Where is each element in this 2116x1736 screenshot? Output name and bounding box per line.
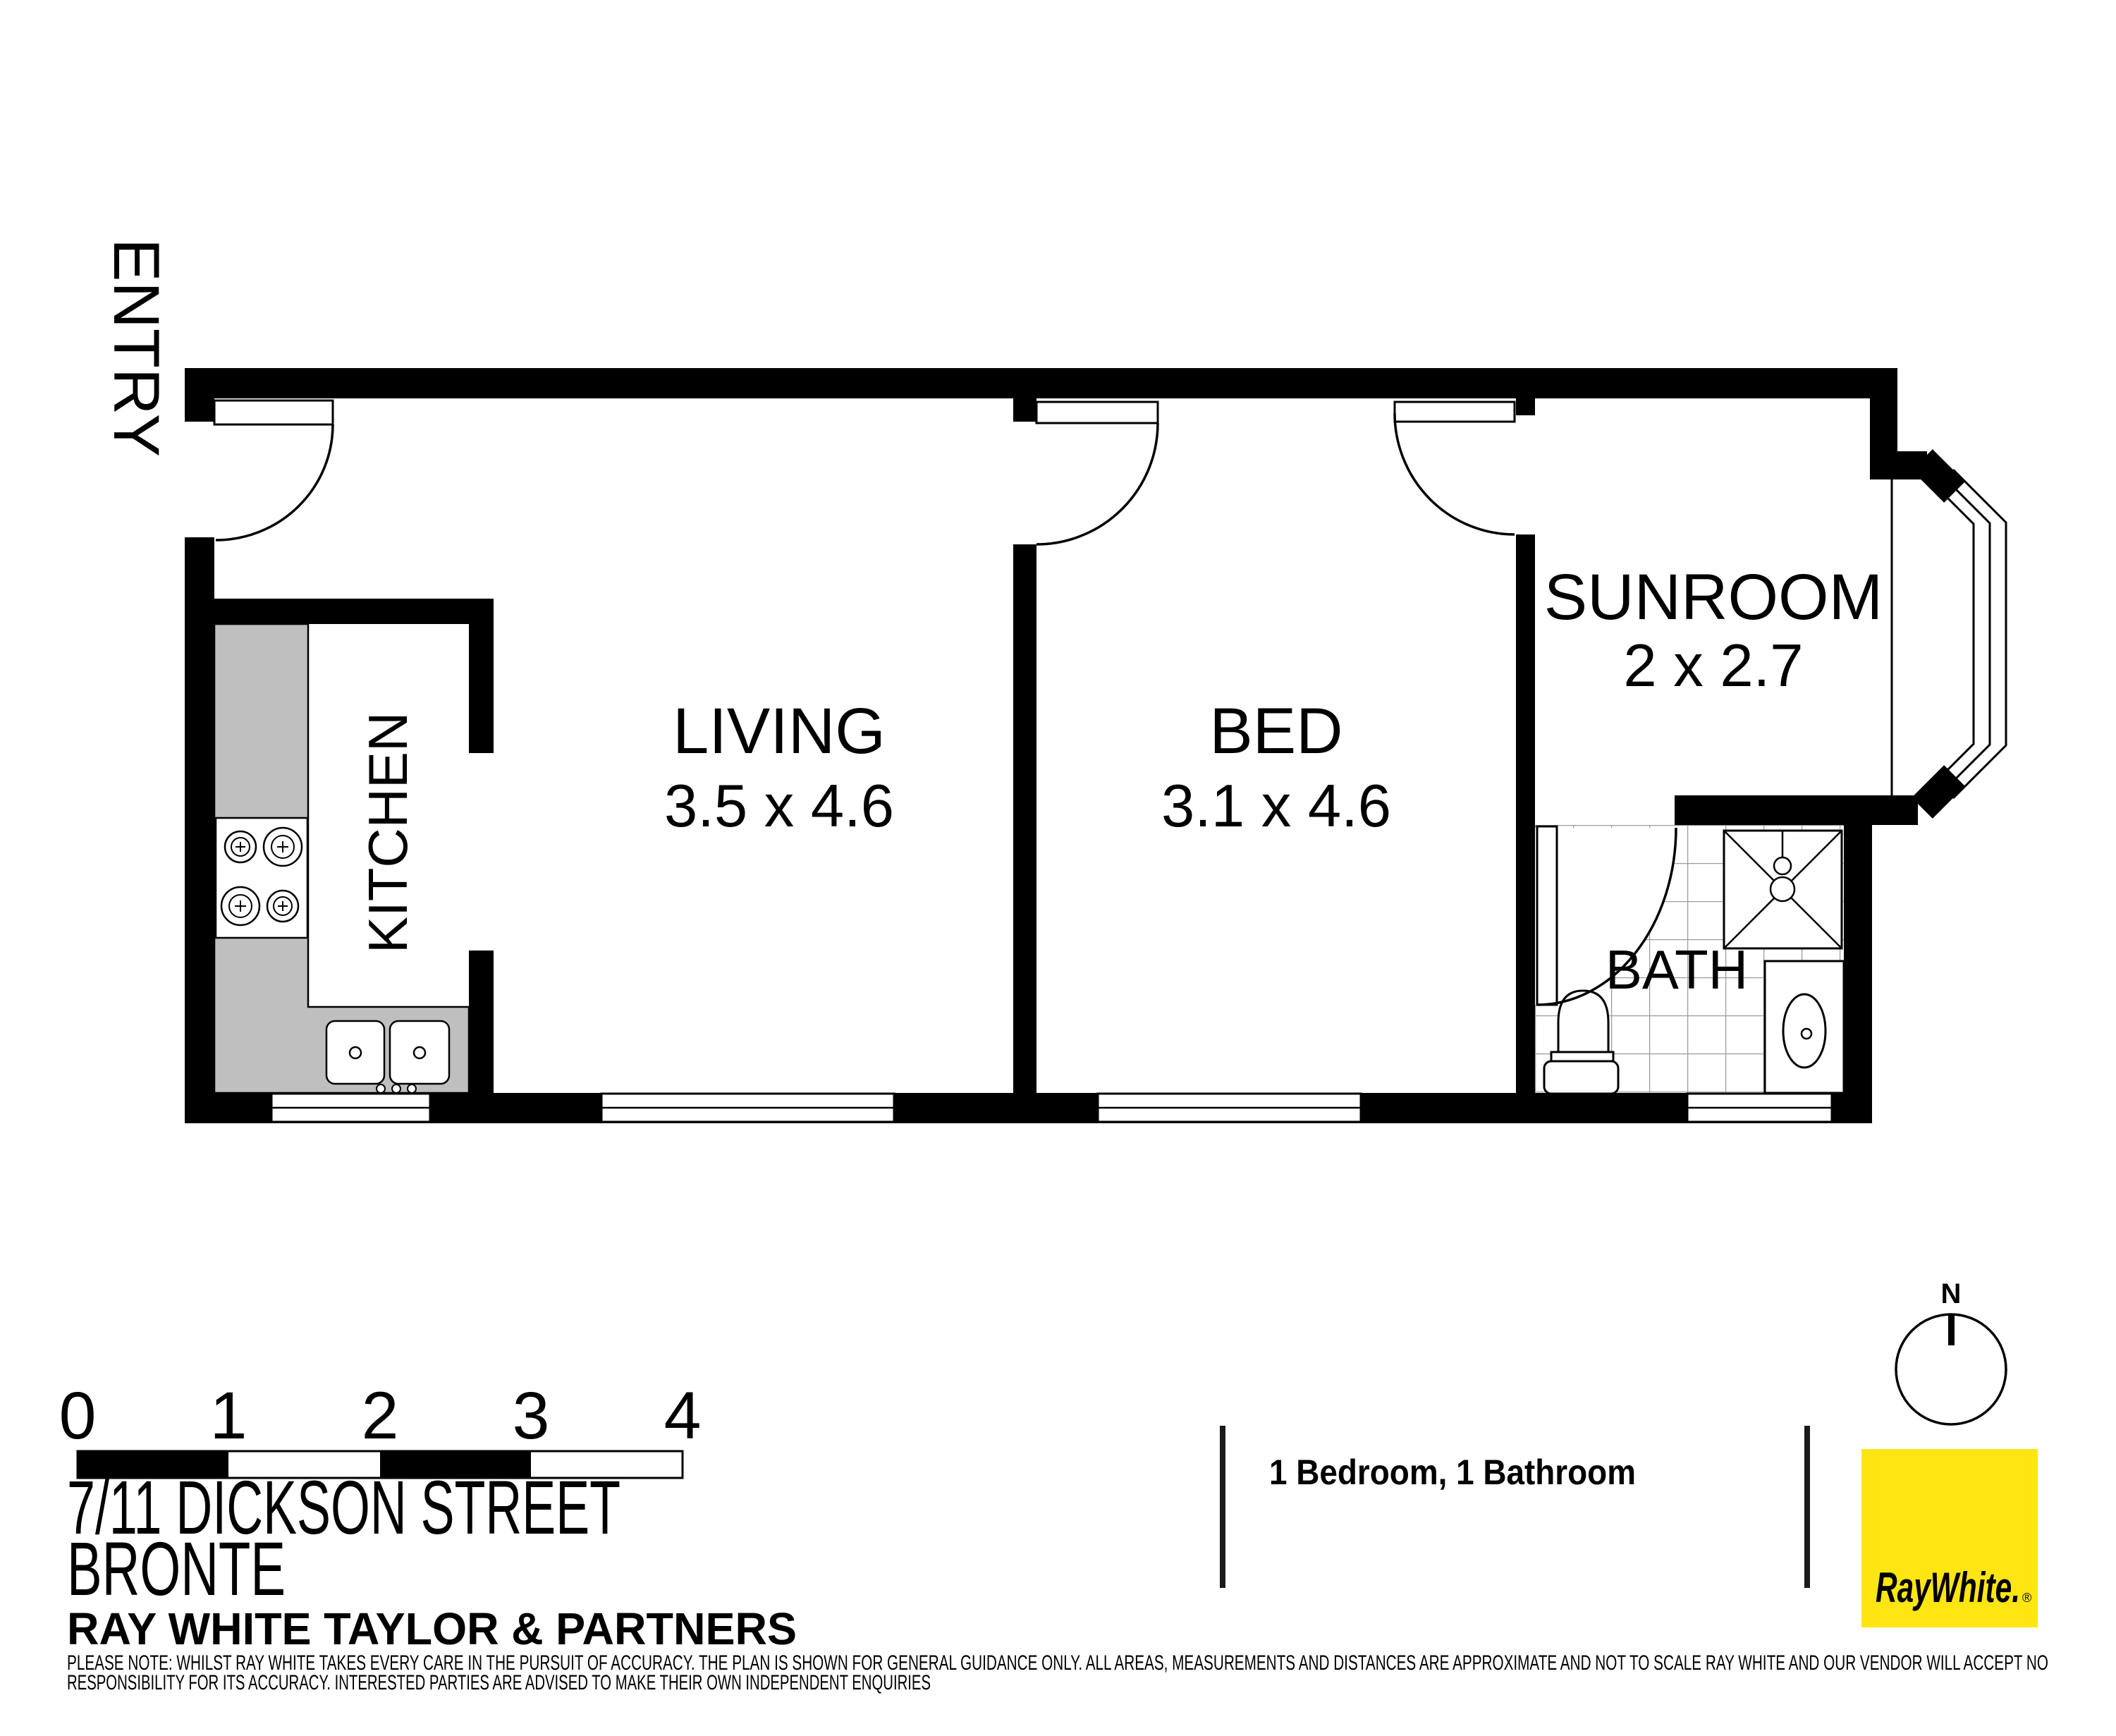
wall-bath-right — [1844, 811, 1872, 1123]
room-label-bath: BATH — [1606, 939, 1748, 1001]
window-kitchen — [271, 1094, 430, 1122]
room-dims-bed: 3.1 x 4.6 — [1161, 773, 1391, 840]
wall-right-top — [1870, 368, 1897, 479]
room-label-kitchen: KITCHEN — [357, 712, 419, 953]
room-label-entry: ENTRY — [100, 238, 172, 457]
stove-burner-bottom-left — [221, 887, 259, 925]
room-dims-living: 3.5 x 4.6 — [664, 773, 894, 840]
room-label-living: LIVING — [673, 695, 886, 767]
stove-icon — [216, 818, 307, 938]
wall-bath-top — [1675, 795, 1918, 825]
floor-plan-page: LIVING 3.5 x 4.6 BED 3.1 x 4.6 SUNROOM 2… — [0, 0, 2116, 1736]
wall-bed-sunroom-divider — [1516, 534, 1535, 1093]
summary-text: 1 Bedroom, 1 Bathroom — [1269, 1453, 1636, 1492]
north-indicator: N — [1896, 1278, 2006, 1424]
divider-left — [1220, 1426, 1225, 1588]
shower-head — [1774, 857, 1791, 874]
wall-top — [185, 368, 1897, 398]
stove-burner-bottom-right — [267, 891, 298, 922]
bed-door — [1036, 402, 1158, 544]
window-bed — [1098, 1094, 1361, 1122]
scale-tick-2: 2 — [362, 1379, 399, 1453]
wall-bottom — [185, 1093, 1872, 1123]
north-label: N — [1941, 1278, 1962, 1309]
bay-window-icon — [1892, 465, 2006, 802]
scale-tick-4: 4 — [664, 1379, 702, 1453]
entry-door-leaf — [214, 401, 333, 424]
wall-entry-pillar — [185, 368, 214, 422]
north-needle — [1948, 1314, 1955, 1345]
stove-burner-top-right — [264, 828, 302, 866]
wall-left — [185, 537, 214, 1123]
entry-door — [214, 401, 333, 540]
bay-window-glazing-outer — [1953, 470, 2006, 798]
wall-living-bed-divider-stub — [1013, 398, 1036, 422]
scale-tick-1: 1 — [210, 1379, 247, 1453]
address-block: 7/11 DICKSON STREET BRONTE RAY WHITE TAY… — [67, 1465, 797, 1654]
shower-icon — [1724, 831, 1842, 948]
ray-white-logo: RayWhite. ® — [1861, 1449, 2038, 1627]
address-suburb: BRONTE — [67, 1526, 286, 1611]
sink-tap-2 — [392, 1084, 400, 1093]
room-dims-sunroom: 2 x 2.7 — [1623, 632, 1803, 699]
room-label-sunroom: SUNROOM — [1544, 561, 1883, 633]
disclaimer: PLEASE NOTE: WHILST RAY WHITE TAKES EVER… — [67, 1651, 2048, 1694]
sink-tap-1 — [377, 1084, 385, 1093]
wall-kitchen-vertical-upper — [469, 624, 494, 753]
bay-window-glazing-middle — [1945, 478, 1990, 790]
wall-kitchen-top — [214, 599, 494, 624]
wall-kitchen-vertical-lower — [469, 950, 494, 1093]
scale-tick-0: 0 — [59, 1379, 97, 1453]
sunroom-door — [1395, 402, 1515, 534]
logo-text: RayWhite. — [1876, 1564, 2020, 1611]
bed-door-swing-arc — [1036, 423, 1158, 544]
window-bath — [1687, 1094, 1832, 1122]
kitchen-fixtures — [214, 624, 469, 1093]
agency-name: RAY WHITE TAYLOR & PARTNERS — [67, 1603, 797, 1654]
entry-door-swing-arc — [216, 424, 333, 540]
toilet-tank — [1544, 1061, 1618, 1094]
bath-door-leaf — [1537, 826, 1557, 1005]
vanity-drain — [1802, 1029, 1811, 1039]
sink-tap-3 — [408, 1084, 416, 1093]
wall-living-bed-divider — [1013, 544, 1036, 1093]
doors — [214, 401, 1676, 1005]
stove-burner-top-left — [225, 831, 256, 862]
scale-bar: 0 1 2 3 4 — [59, 1379, 702, 1478]
sink-drain-left — [350, 1047, 361, 1058]
divider-right — [1804, 1426, 1810, 1588]
registered-mark-icon: ® — [2022, 1591, 2031, 1605]
sunroom-door-swing-arc — [1395, 413, 1515, 534]
shower-drain — [1771, 877, 1794, 901]
sink-drain-right — [414, 1047, 425, 1058]
floor-plan-svg: LIVING 3.5 x 4.6 BED 3.1 x 4.6 SUNROOM 2… — [0, 0, 2116, 1736]
scale-tick-3: 3 — [513, 1379, 550, 1453]
bed-door-leaf — [1036, 402, 1158, 423]
room-label-bed: BED — [1209, 695, 1343, 767]
sunroom-door-leaf — [1395, 402, 1515, 422]
bay-window-glazing-inner — [1936, 487, 1974, 781]
disclaimer-line-2: RESPONSIBILITY FOR ITS ACCURACY. INTERES… — [67, 1671, 931, 1694]
wall-bed-sunroom-divider-stub — [1516, 398, 1535, 415]
property-summary: 1 Bedroom, 1 Bathroom — [1220, 1426, 1810, 1588]
vanity-icon — [1765, 961, 1844, 1093]
window-living — [601, 1094, 894, 1122]
